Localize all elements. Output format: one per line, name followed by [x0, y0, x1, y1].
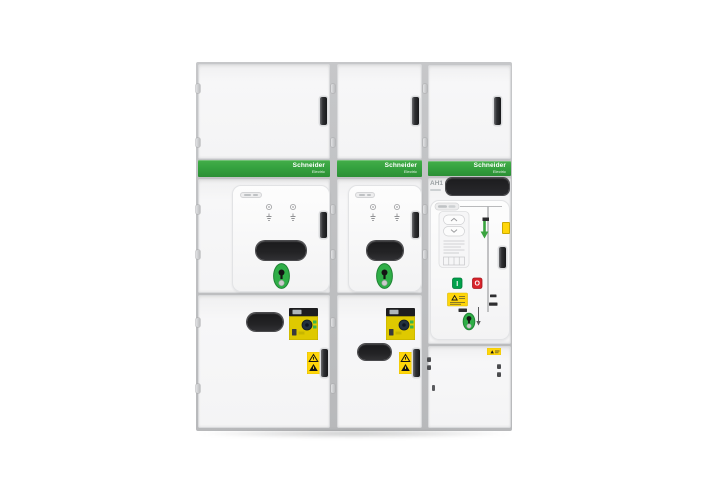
designation-text: AH1 — [430, 181, 443, 188]
schneider-logo: Schneider Electric — [474, 163, 506, 175]
brand-stripe: Schneider Electric — [337, 160, 422, 177]
label-recess — [247, 313, 283, 331]
fastener — [497, 364, 501, 377]
model-badge — [355, 192, 375, 198]
brand-stripe: Schneider Electric — [198, 160, 330, 177]
hinge — [423, 138, 427, 147]
operation-panel — [348, 185, 422, 292]
warning-sticker — [448, 293, 468, 306]
door-handle — [499, 247, 506, 268]
position-indicators-icon — [365, 203, 405, 223]
hinge — [196, 138, 200, 147]
model-badge — [240, 192, 262, 198]
brand-tagline: Electric — [312, 170, 325, 174]
door-handle — [412, 212, 419, 238]
cubicle-designation: AH1 — [430, 181, 443, 191]
door-handle — [321, 349, 328, 377]
label-recess — [358, 344, 391, 360]
schneider-logo: Schneider Electric — [385, 163, 417, 175]
hinge — [423, 84, 427, 93]
position-indicators-icon — [261, 203, 301, 223]
hinge — [331, 84, 335, 93]
arc-warning-sticker — [399, 352, 412, 374]
hinge — [196, 318, 200, 327]
product-photo-canvas: Schneider Electric — [0, 0, 708, 499]
top-door — [198, 64, 330, 159]
operation-panel — [232, 185, 330, 292]
fastener — [432, 385, 435, 391]
door-handle — [413, 349, 420, 377]
hinge — [331, 138, 335, 147]
brand-tagline: Electric — [404, 170, 417, 174]
schneider-logo: Schneider Electric — [293, 163, 325, 175]
designation-subline — [430, 189, 441, 191]
warning-strip-sticker — [487, 348, 501, 355]
hinge — [331, 318, 335, 327]
hinge — [196, 84, 200, 93]
viewing-window — [367, 241, 403, 260]
arc-warning-sticker — [307, 352, 320, 374]
hinge — [196, 250, 200, 259]
operation-keyhole-icon — [273, 263, 290, 289]
mimic-diagram: I O — [431, 201, 509, 339]
close-button: I — [453, 278, 463, 289]
earthing-keyhole-icon — [463, 313, 475, 329]
hinge — [331, 250, 335, 259]
door-handle — [320, 97, 327, 125]
floor-shadow — [198, 429, 510, 438]
top-door — [337, 64, 422, 159]
door-handle — [412, 97, 419, 125]
hinge — [423, 250, 427, 259]
fastener — [427, 357, 431, 370]
hinge — [196, 205, 200, 214]
hinge — [331, 205, 335, 214]
voltage-indicator-device — [289, 308, 318, 340]
brand-stripe: Schneider Electric — [428, 161, 511, 176]
edge-warning-label — [502, 222, 510, 234]
hinge — [196, 384, 200, 393]
svg-text:I: I — [456, 281, 458, 288]
hinge — [331, 384, 335, 393]
viewing-window — [256, 241, 306, 260]
brand-tagline: Electric — [493, 170, 506, 174]
door-handle — [494, 97, 501, 125]
door-handle — [320, 212, 327, 238]
operation-keyhole-icon — [376, 263, 393, 289]
hinge — [423, 205, 427, 214]
svg-text:O: O — [474, 281, 480, 288]
bottom-panel — [428, 346, 511, 428]
voltage-indicator-device — [386, 308, 415, 340]
lv-display-window — [446, 178, 509, 195]
mimic-panel: I O — [430, 200, 510, 340]
open-button: O — [473, 278, 483, 289]
